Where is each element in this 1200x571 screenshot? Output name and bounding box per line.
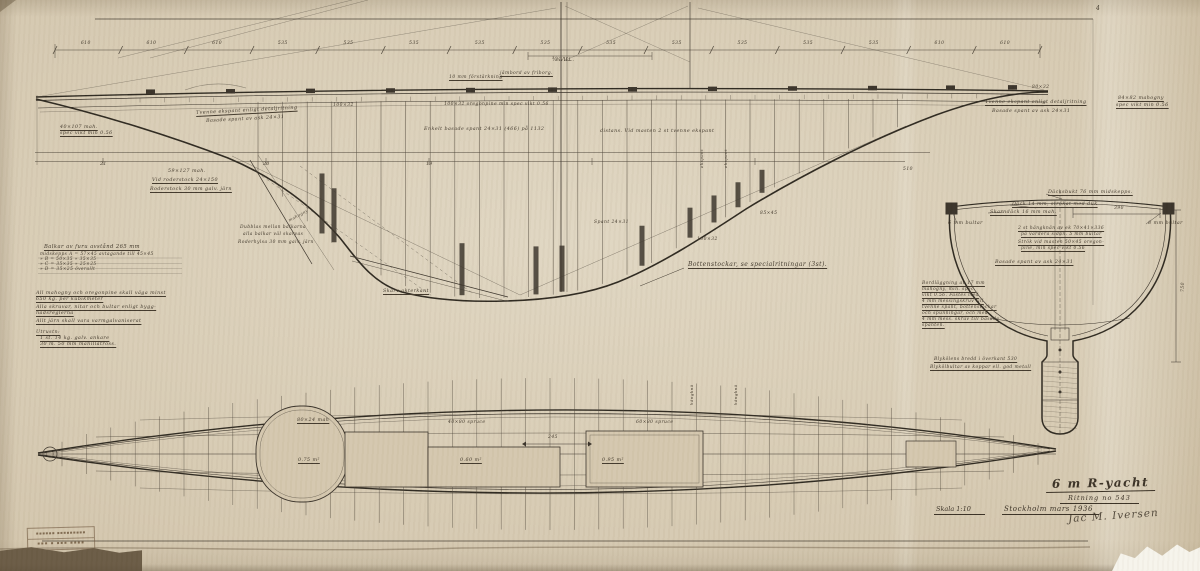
profile-label: distans. Vid masten 2 st tvenne ekspant: [600, 130, 714, 135]
profile-label: 80×32: [1032, 86, 1049, 91]
section-label: mahogny, min. spec.: [922, 288, 976, 292]
profile-label: Roderhylsa 30 mm galv. järn: [238, 241, 314, 245]
section-label: spanten.: [922, 324, 945, 328]
section-label: Strök vid masten 50×45 oregon-: [1018, 241, 1104, 245]
section-label: 750: [1182, 282, 1187, 292]
section-label: 6 mm bultar: [948, 222, 983, 227]
dimension-value: 610: [81, 42, 91, 47]
dimension-value: 535: [541, 42, 551, 47]
profile-label: Tvenne ekspant enligt detaljritning: [985, 101, 1087, 106]
profile-floor-timbers: [320, 170, 765, 295]
plan-label: hängknä: [734, 384, 738, 405]
archive-stamp-line1: ▪▪▪▪▪▪ ▪▪▪▪▪▪▪▪▪: [28, 530, 94, 536]
section-label: Blykölbultar av koppar ell. god metall: [930, 366, 1031, 370]
note-line: 650 kg. per kubikmeter: [36, 298, 103, 303]
paper-edge: [0, 547, 1090, 550]
profile-label: Roderstock 30 mm galv. järn: [150, 188, 232, 193]
section-label: Däcksbukt 76 mm midskepps.: [1048, 191, 1133, 196]
section-label: tvenne spant, bottenstockar: [922, 306, 997, 310]
profile-label: 510: [903, 168, 913, 173]
dimension-value: 535: [738, 42, 748, 47]
section-label: vikt 0.56. Fästes med: [922, 294, 979, 298]
dimension-value: 535: [606, 42, 616, 47]
dimension-value: 610: [935, 42, 945, 47]
section-label: Basade spant av ask 24×31: [995, 261, 1073, 266]
profile-label: alla balkar väl skarvas: [243, 233, 303, 237]
plan-label: 40×80 spruce: [448, 421, 485, 426]
profile-label: Enkelt basade spant 24×31 (466) på 1132: [424, 128, 544, 133]
profile-label: spec vikt min 0.56: [60, 132, 113, 137]
bottom-edge-shadow: [0, 564, 1200, 571]
dimension-value: 610: [147, 42, 157, 47]
plan-label: 245: [548, 436, 558, 441]
plan-label: 0.95 m²: [602, 459, 624, 464]
section-label: Blykölens bredd i överkant 530: [934, 358, 1017, 362]
profile-label: Bottenstockar, se specialritningar (3st)…: [688, 262, 827, 268]
plan-label: 0.60 m²: [460, 459, 482, 464]
note-line: Allt järn skall vara varmgalvaniserat: [36, 320, 141, 325]
profile-label: spec vikt min 0.56: [1116, 104, 1169, 109]
drawing-number: Ritning no 543: [1060, 494, 1139, 504]
profile-label: 84×82 mahogny: [1118, 97, 1164, 102]
profile-label: jämbord av friborg.: [500, 72, 553, 77]
section-label: 4 mm messingskruv till: [922, 300, 984, 304]
section-label: 8 mm bultar: [1148, 222, 1183, 227]
profile-label: 100×32: [333, 104, 354, 109]
waterline-fraction-label: ¾ V.L.: [556, 58, 574, 63]
plan-label: 0.75 m²: [298, 459, 320, 464]
profile-label: ekspant: [700, 149, 704, 168]
section-label: pine, min spec vikt 0.56: [1021, 247, 1085, 251]
section-label: och spunningar, och med: [922, 312, 988, 316]
corner-mark: 4: [1096, 6, 1100, 12]
plan-label: hängknä: [690, 384, 694, 405]
profile-label: Basade spant av ask 24×31: [992, 110, 1070, 115]
beam-table-row: » D = 35×25 överallt: [40, 268, 95, 272]
note-line: nadsreglerna: [36, 312, 74, 317]
dimension-value: 535: [475, 42, 485, 47]
plan-label: 60×80 spruce: [636, 421, 673, 426]
profile-label: 100×32 oregonpine min spec vikt 0.56: [444, 103, 549, 108]
drawing-linework: [0, 0, 1200, 571]
dimension-value: 535: [344, 42, 354, 47]
dimension-value: 535: [869, 42, 879, 47]
scale-label: Skala 1:10: [934, 505, 985, 515]
profile-label: Skarv akterkant: [383, 290, 429, 295]
dimension-value: 535: [409, 42, 419, 47]
station-number: 20: [263, 163, 270, 168]
section-label: 4 mm mess. skruv till basade: [922, 318, 999, 322]
station-number: 21: [100, 163, 107, 168]
section-label: Bordläggning av 17 mm: [922, 282, 985, 286]
drawing-title: 6 m R-yacht: [1046, 475, 1155, 493]
profile-frames: [140, 94, 1001, 298]
section-label: 390: [1114, 207, 1124, 212]
dimension-value: 535: [278, 42, 288, 47]
plan-label: 80×24 mah: [297, 419, 329, 424]
profile-label: ekspant: [724, 149, 728, 168]
profile-label: Spant 24×31: [594, 221, 629, 226]
section-label: Däck 14 mm, strökat med duk: [1012, 203, 1098, 208]
section-label: 2 st hängknän av ek 70×41×336: [1018, 227, 1104, 231]
profile-label: 10 mm förstärkning: [449, 76, 503, 81]
station-number: 19: [426, 163, 433, 168]
dimension-value: 535: [672, 42, 682, 47]
profile-label: 100×32: [697, 238, 718, 243]
section-label: Skarndäck 16 mm mah.: [990, 211, 1057, 216]
dimension-value: 610: [212, 42, 222, 47]
beam-notes-heading: Balkar av furu avstånd 265 mm: [44, 245, 140, 250]
profile-label: 85×45: [760, 212, 777, 217]
sub-dimension: [528, 52, 652, 60]
profile-label: Vid roderstock 24×150: [152, 179, 218, 184]
blueprint-sheet: ¾ V.L.10 mm förstärkningjämbord av fribo…: [0, 0, 1200, 571]
archive-stamp: ▪▪▪▪▪▪ ▪▪▪▪▪▪▪▪▪ ▪▪▪ ▪ ▪▪▪ ▪▪▪▪: [27, 526, 96, 551]
dimension-value: 610: [1000, 42, 1010, 47]
profile-label: 59×127 mah.: [168, 170, 206, 175]
profile-label: Dubblas mellan balkarna: [240, 226, 306, 230]
dimension-value: 535: [803, 42, 813, 47]
archive-stamp-line2: ▪▪▪ ▪ ▪▪▪ ▪▪▪▪: [28, 537, 94, 546]
section-label: på vardera sidan. 5 mm bultar: [1021, 233, 1102, 237]
note-line: 30 m. 50 mm manillatross.: [40, 343, 116, 348]
